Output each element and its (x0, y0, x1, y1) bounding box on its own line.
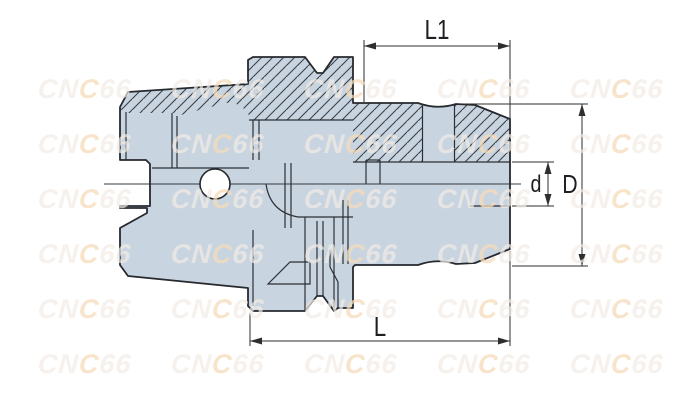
technical-drawing-canvas: L1 L D d (0, 0, 700, 400)
dimension-label-small-d: d (531, 170, 542, 197)
section-hatch-body (353, 103, 510, 162)
dimension-label-big-d: D (562, 170, 577, 200)
drive-hole (200, 169, 230, 199)
clamp-channel (423, 106, 455, 162)
dimension-label-l1: L1 (425, 15, 450, 46)
dimension-label-l: L (374, 312, 386, 343)
drawing-stage: L1 L D d CNC66CNC66CNC66CNC66CNC66CNC66C… (0, 0, 700, 400)
